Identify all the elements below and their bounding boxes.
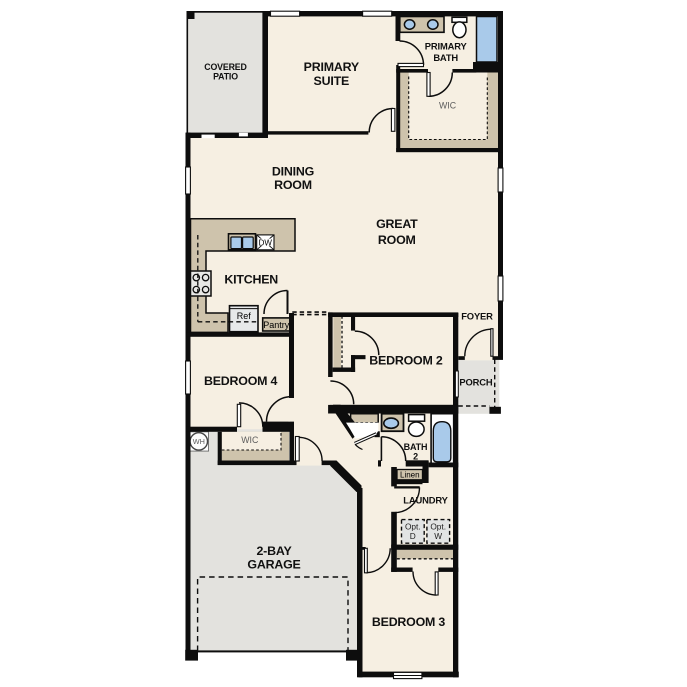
svg-text:PORCH: PORCH xyxy=(459,377,492,388)
svg-text:PRIMARY: PRIMARY xyxy=(425,41,468,52)
svg-text:GARAGE: GARAGE xyxy=(247,558,300,572)
svg-text:WIC: WIC xyxy=(241,435,259,445)
svg-text:PRIMARY: PRIMARY xyxy=(304,60,360,74)
svg-text:SUITE: SUITE xyxy=(314,74,350,88)
svg-text:Opt.: Opt. xyxy=(430,522,446,532)
svg-text:Opt.: Opt. xyxy=(405,522,421,532)
svg-text:ROOM: ROOM xyxy=(378,233,416,247)
svg-text:Ref: Ref xyxy=(237,311,252,321)
svg-text:WH: WH xyxy=(193,437,205,446)
svg-text:COVERED: COVERED xyxy=(204,62,246,72)
svg-text:KITCHEN: KITCHEN xyxy=(224,273,278,287)
svg-text:W: W xyxy=(434,531,442,541)
svg-text:ROOM: ROOM xyxy=(274,178,312,192)
svg-text:D: D xyxy=(410,531,416,541)
svg-text:GREAT: GREAT xyxy=(376,217,418,231)
svg-text:2-BAY: 2-BAY xyxy=(256,544,292,558)
svg-text:WIC: WIC xyxy=(439,101,457,111)
svg-text:2: 2 xyxy=(413,452,418,462)
svg-text:PATIO: PATIO xyxy=(213,72,238,82)
svg-text:Pantry: Pantry xyxy=(263,320,290,330)
svg-text:BEDROOM 2: BEDROOM 2 xyxy=(369,353,443,367)
svg-text:Linen: Linen xyxy=(400,471,420,480)
svg-text:FOYER: FOYER xyxy=(461,311,493,322)
svg-text:LAUNDRY: LAUNDRY xyxy=(403,495,448,506)
svg-text:BEDROOM 4: BEDROOM 4 xyxy=(204,374,278,388)
svg-text:DW: DW xyxy=(259,238,273,247)
svg-text:BEDROOM 3: BEDROOM 3 xyxy=(372,615,446,629)
svg-text:BATH: BATH xyxy=(433,52,458,63)
svg-text:DINING: DINING xyxy=(272,164,314,178)
